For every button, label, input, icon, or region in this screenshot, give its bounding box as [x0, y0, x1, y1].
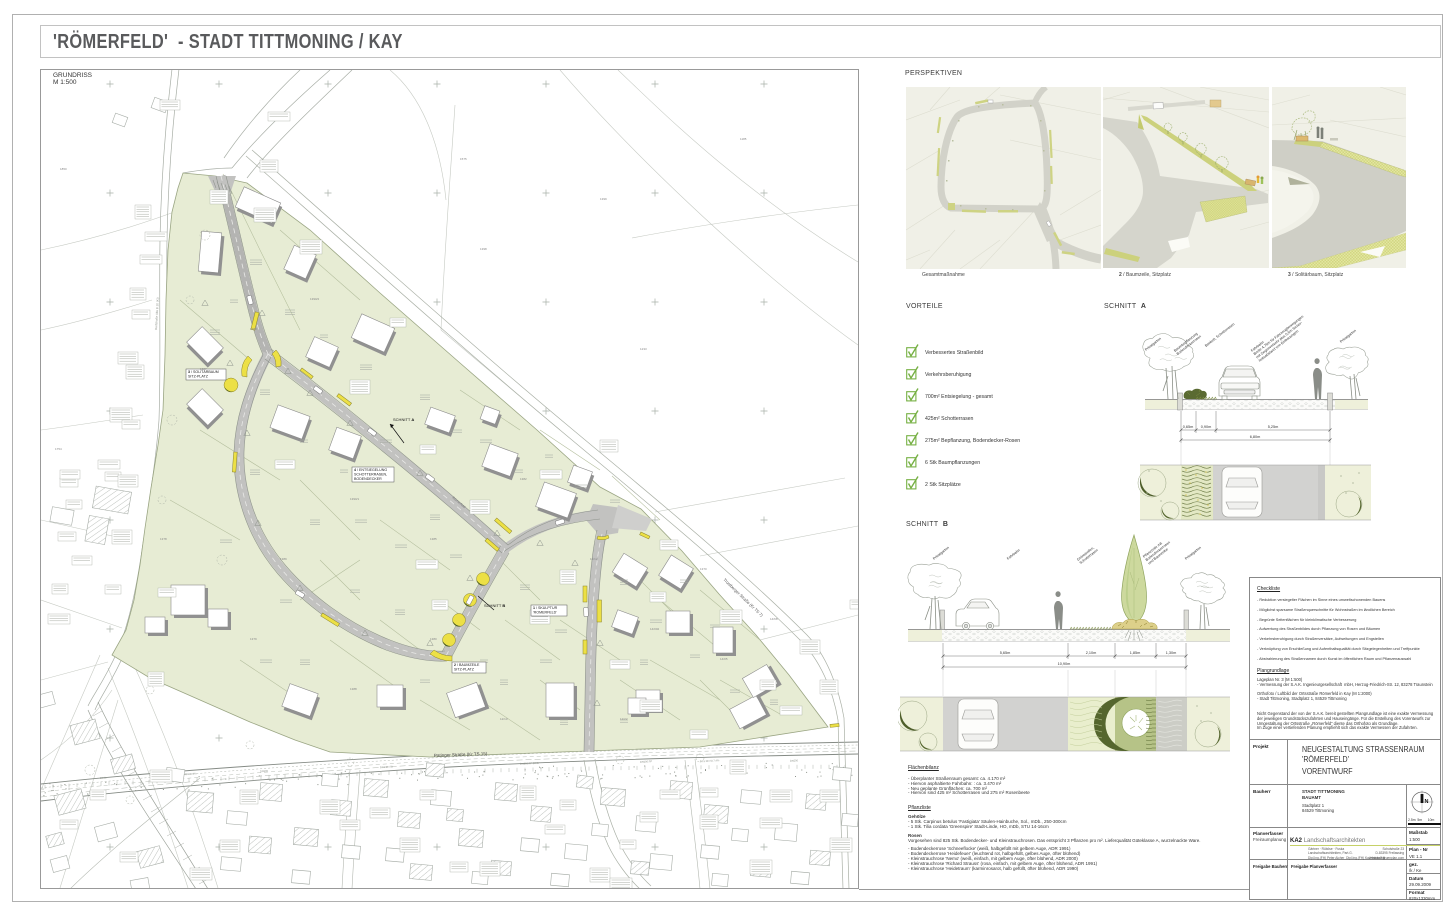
svg-text:1370: 1370: [700, 567, 707, 571]
svg-text:1382: 1382: [520, 477, 527, 481]
svg-text:14/002: 14/002: [650, 627, 660, 631]
svg-text:1379: 1379: [250, 637, 257, 641]
svg-text:5,65m: 5,65m: [1000, 651, 1011, 655]
svg-text:5,25m: 5,25m: [1268, 425, 1279, 429]
svg-text:mit Gegenverkehr plus 0,5m Sic: mit Gegenverkehr plus 0,5m Sicher-: [1255, 320, 1303, 359]
svg-text:'ROMERFELD': 'ROMERFELD': [533, 610, 557, 614]
svg-text:1185: 1185: [740, 137, 747, 141]
svg-text:0,65m: 0,65m: [1183, 425, 1194, 429]
svg-text:DN500: DN500: [790, 758, 799, 762]
svg-text:Fahrbahn: Fahrbahn: [1006, 548, 1021, 561]
svg-text:GRUNDRISS: GRUNDRISS: [53, 72, 93, 79]
svg-text:1378: 1378: [160, 537, 167, 541]
svg-text:1,30m: 1,30m: [1166, 651, 1177, 655]
svg-text:4 / ENTSIEGELUNG: 4 / ENTSIEGELUNG: [354, 468, 387, 472]
svg-text:1390/1: 1390/1: [350, 497, 360, 501]
svg-text:Privatgarten: Privatgarten: [1339, 329, 1357, 344]
svg-text:Privatgarten: Privatgarten: [1184, 546, 1202, 561]
svg-text:1383: 1383: [250, 327, 257, 331]
svg-text:1,85m: 1,85m: [1130, 651, 1141, 655]
svg-text:6,80m: 6,80m: [1250, 435, 1261, 439]
svg-text:M 1:500: M 1:500: [53, 79, 77, 86]
svg-text:DN500.PP: DN500.PP: [640, 759, 653, 764]
svg-text:1387: 1387: [200, 367, 207, 371]
svg-text:1754: 1754: [55, 447, 62, 451]
svg-text:1380: 1380: [430, 637, 437, 641]
svg-text:2,10m: 2,10m: [1086, 651, 1097, 655]
svg-text:14/05: 14/05: [720, 657, 728, 661]
svg-text:SCHNITT A: SCHNITT A: [393, 417, 414, 422]
svg-text:Bankett, Schotterrasen: Bankett, Schotterrasen: [1204, 322, 1235, 348]
svg-text:1390/2: 1390/2: [310, 297, 320, 301]
svg-text:87.5 DN St: 87.5 DN St: [380, 765, 393, 770]
svg-text:1233: 1233: [640, 347, 647, 351]
svg-text:12/22: 12/22: [620, 717, 628, 721]
svg-text:1385: 1385: [430, 537, 437, 541]
svg-text:BODENDECKER: BODENDECKER: [354, 477, 382, 481]
svg-text:13/12: 13/12: [590, 557, 598, 561]
svg-text:1389: 1389: [280, 557, 287, 561]
svg-text:Privatgarten: Privatgarten: [932, 546, 950, 561]
svg-text:1388: 1388: [350, 687, 357, 691]
svg-text:0,90m: 0,90m: [1201, 425, 1212, 429]
svg-text:SITZ-PLATZ: SITZ-PLATZ: [188, 374, 209, 378]
svg-text:DN500: DN500: [260, 769, 269, 773]
svg-text:1850: 1850: [60, 167, 67, 171]
svg-text:2 / BAUMZEILE: 2 / BAUMZEILE: [454, 663, 480, 667]
svg-text:12/10: 12/10: [500, 717, 508, 721]
svg-text:10,90m: 10,90m: [1058, 662, 1071, 666]
svg-text:28.09: 28.09: [100, 776, 107, 780]
svg-text:1 / SKULPTUR: 1 / SKULPTUR: [533, 606, 558, 610]
svg-text:SCHOTTERRASEN,: SCHOTTERRASEN,: [354, 472, 387, 476]
svg-text:SITZ-PLATZ: SITZ-PLATZ: [454, 667, 475, 671]
svg-text:1399: 1399: [600, 197, 607, 201]
svg-text:1575: 1575: [460, 157, 467, 161]
svg-text:14/68: 14/68: [770, 617, 778, 621]
svg-text:N: N: [1425, 799, 1429, 805]
svg-text:1398: 1398: [480, 247, 487, 251]
svg-text:Breite 4,75m für Fahrzeugbeweg: Breite 4,75m für Fahrzeugbewegungen: [1253, 315, 1305, 357]
